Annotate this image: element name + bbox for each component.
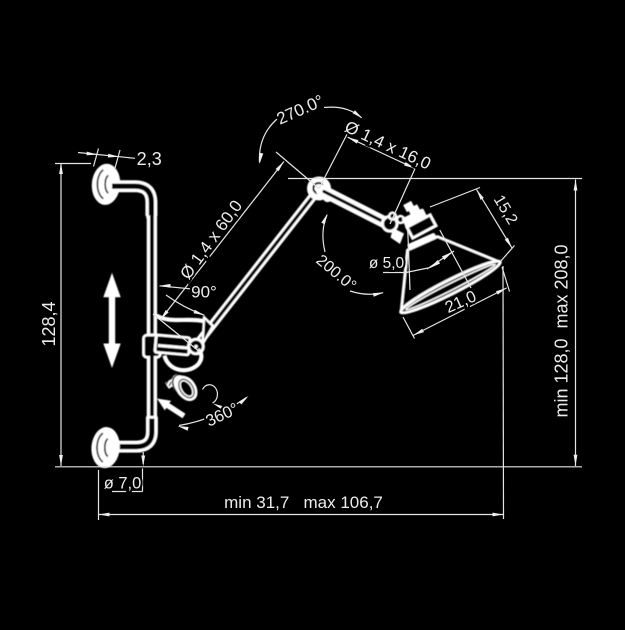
svg-text:min 128,0 max 208,0: min 128,0 max 208,0 xyxy=(552,244,572,417)
svg-text:128,4: 128,4 xyxy=(39,301,59,346)
svg-text:2,3: 2,3 xyxy=(137,149,162,169)
svg-text:min 31,7 max 106,7: min 31,7 max 106,7 xyxy=(224,493,383,512)
svg-text:90°: 90° xyxy=(191,282,217,301)
svg-text:ø 7,0: ø 7,0 xyxy=(104,475,142,493)
svg-text:ø 5,0: ø 5,0 xyxy=(369,255,405,272)
